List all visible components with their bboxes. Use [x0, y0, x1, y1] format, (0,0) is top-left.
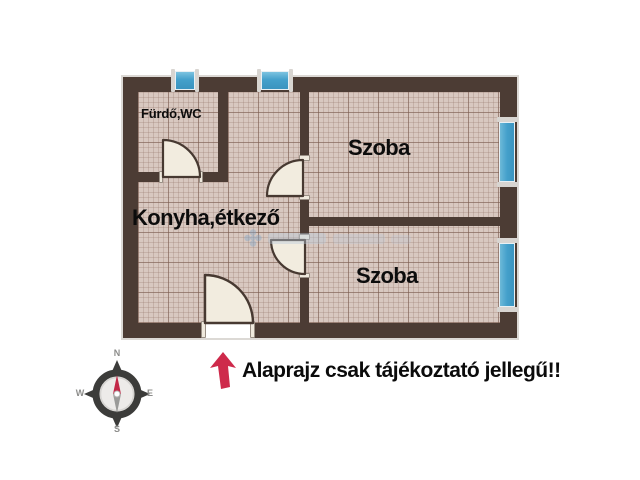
bathroom-door-swing-icon	[158, 136, 206, 182]
window-icon-top2-cap-right	[289, 69, 293, 92]
watermark-icon	[244, 229, 262, 247]
room-label-room-top: Szoba	[348, 137, 410, 159]
window-icon-right2-cap-bottom	[497, 307, 518, 312]
window-icon-right1-cap-bottom	[497, 182, 518, 187]
window-icon-right2	[499, 243, 515, 307]
wall-rooms-divider	[309, 217, 500, 226]
wall-divider-top	[300, 92, 309, 161]
compass-label-north: N	[111, 349, 123, 358]
disclaimer-text: Alaprajz csak tájékoztató jellegű!!	[242, 360, 561, 381]
watermark-text-blur	[333, 234, 385, 244]
watermark-text-blur	[391, 235, 411, 244]
compass-label-east: E	[144, 389, 156, 398]
room-label-bathroom: Fürdő,WC	[141, 107, 202, 120]
wall-bathroom-right	[218, 92, 228, 182]
compass-label-west: W	[74, 389, 86, 398]
wall-bottom-left	[123, 323, 205, 338]
room-label-room-bottom: Szoba	[356, 265, 418, 287]
room-label-kitchen: Konyha,étkező	[132, 207, 279, 229]
up-arrow-icon	[210, 352, 238, 390]
floorplan-screenshot: Fürdő,WC Konyha,étkező Szoba Szoba N W E…	[0, 0, 640, 480]
room-top-door-swing-icon	[263, 156, 309, 200]
watermark-text-blur	[268, 233, 326, 244]
window-icon-top1-cap-right	[195, 69, 199, 92]
wall-divider-bottom	[300, 274, 309, 323]
compass-label-south: S	[111, 425, 123, 434]
wall-bottom-right	[253, 323, 517, 338]
window-icon-top2	[261, 71, 289, 90]
window-icon-right1	[499, 122, 515, 182]
window-icon-top1	[175, 71, 195, 90]
entrance-door-swing-icon	[201, 271, 257, 327]
